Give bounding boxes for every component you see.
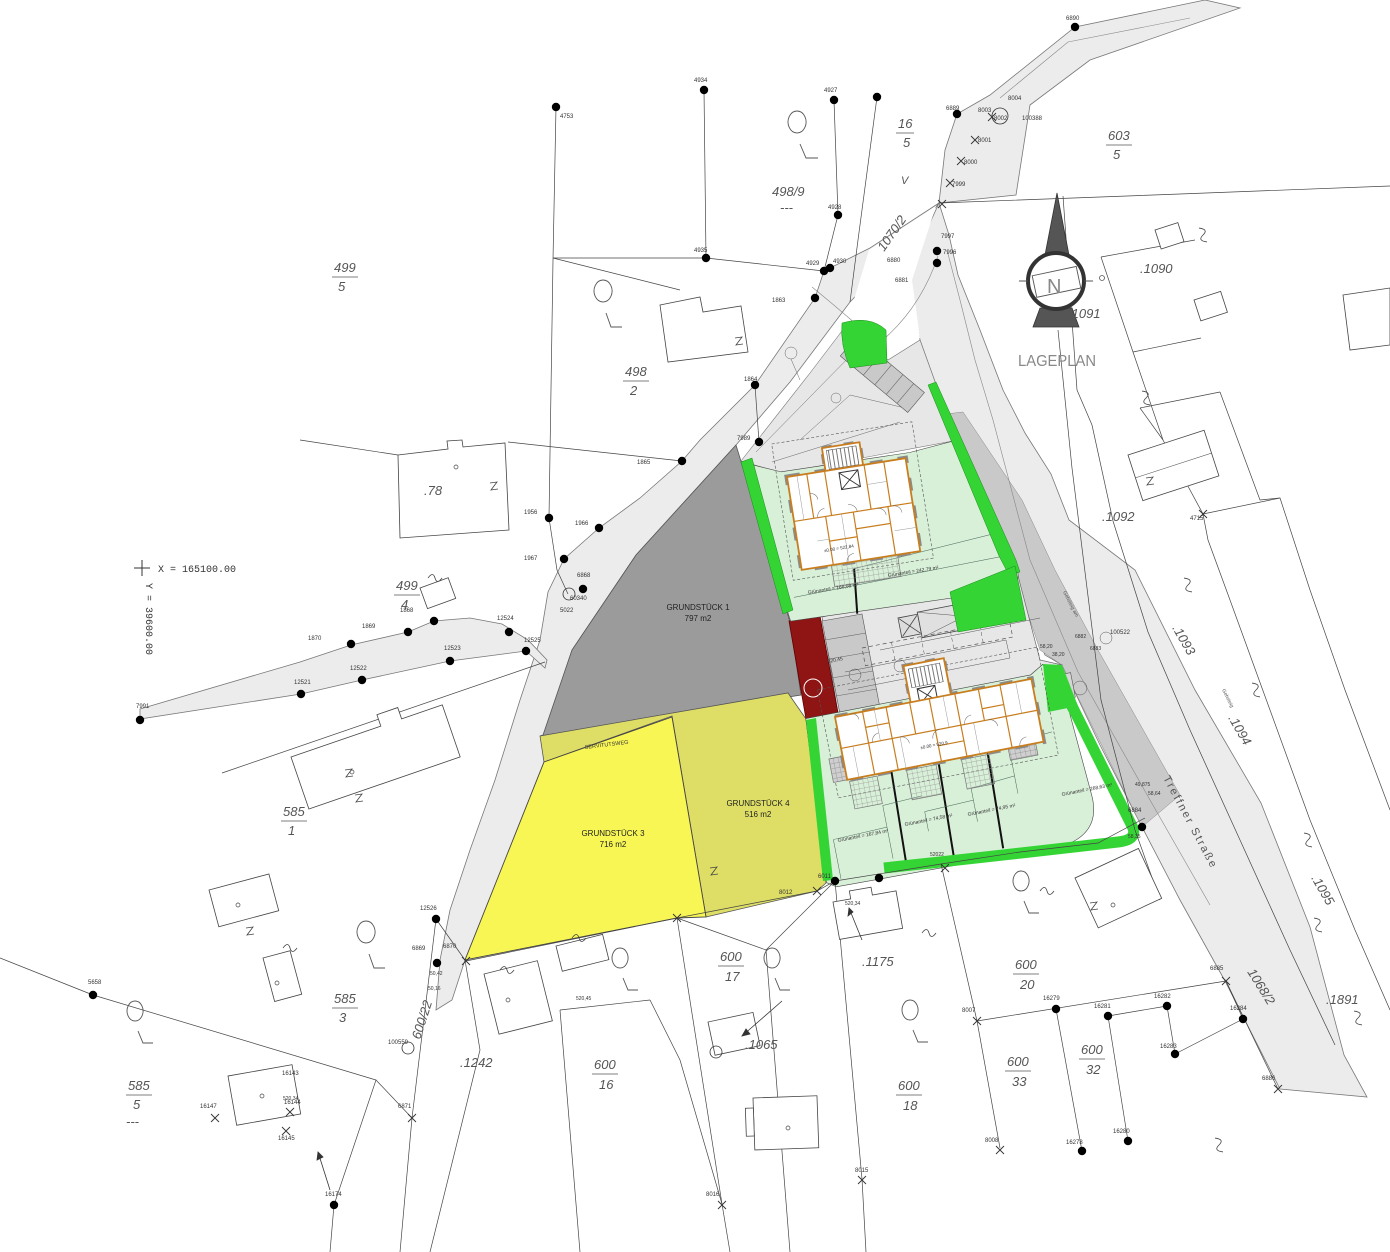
svg-text:12523: 12523 [444,646,461,652]
svg-text:58,20: 58,20 [1040,644,1053,650]
svg-text:---: --- [780,200,794,215]
svg-text:.1891: .1891 [1326,992,1359,1007]
svg-text:49,875: 49,875 [1135,782,1151,788]
svg-text:3: 3 [339,1010,347,1025]
svg-text:16282: 16282 [1154,994,1171,1000]
svg-text:499: 499 [396,578,418,593]
svg-text:4715: 4715 [1190,516,1204,522]
svg-text:12521: 12521 [294,680,311,686]
svg-text:8000: 8000 [964,160,978,166]
svg-text:16281: 16281 [1094,1004,1111,1010]
svg-text:16: 16 [599,1077,614,1092]
svg-text:N: N [1047,276,1061,298]
svg-text:600: 600 [594,1057,616,1072]
svg-text:1870: 1870 [308,636,322,642]
svg-text:6881: 6881 [895,278,909,284]
svg-text:GRUNDSTÜCK 4: GRUNDSTÜCK 4 [726,799,790,808]
svg-text:GRUNDSTÜCK 1: GRUNDSTÜCK 1 [666,603,730,612]
svg-text:6868: 6868 [577,573,591,579]
svg-text:600: 600 [1081,1042,1103,1057]
svg-text:60340: 60340 [570,596,587,602]
svg-text:1869: 1869 [362,624,376,630]
svg-text:16174: 16174 [325,1192,342,1198]
svg-text:5: 5 [1113,147,1121,162]
svg-text:GRUNDSTÜCK 3: GRUNDSTÜCK 3 [581,829,645,838]
svg-text:520,34: 520,34 [845,901,861,907]
svg-text:32: 32 [1086,1062,1101,1077]
svg-text:585: 585 [128,1078,150,1093]
svg-text:.1091: .1091 [1068,306,1101,321]
svg-text:7991: 7991 [136,704,150,710]
svg-text:.1092: .1092 [1102,509,1135,524]
svg-text:100388: 100388 [1022,116,1043,122]
svg-text:520,34: 520,34 [283,1096,299,1102]
svg-text:600: 600 [1015,957,1037,972]
svg-text:16145: 16145 [278,1136,295,1142]
svg-text:498/9: 498/9 [772,184,805,199]
svg-text:1863: 1863 [772,298,786,304]
svg-text:520,45: 520,45 [576,996,592,1002]
svg-text:6886: 6886 [1262,1076,1276,1082]
svg-text:X = 165100.00: X = 165100.00 [158,565,236,576]
svg-text:16284: 16284 [1230,1006,1247,1012]
svg-text:12526: 12526 [420,906,437,912]
svg-text:6011: 6011 [818,874,832,880]
svg-text:.1065: .1065 [745,1037,778,1052]
svg-text:16143: 16143 [282,1071,299,1077]
svg-text:12525: 12525 [524,638,541,644]
svg-text:.78: .78 [424,483,443,498]
svg-text:603: 603 [1108,128,1130,143]
svg-text:499: 499 [334,260,356,275]
svg-text:7996: 7996 [943,250,957,256]
svg-text:585: 585 [334,991,356,1006]
svg-text:20: 20 [1019,977,1035,992]
svg-text:1967: 1967 [524,556,538,562]
svg-text:1864: 1864 [744,377,758,383]
svg-text:8008: 8008 [985,1138,999,1144]
svg-text:8004: 8004 [1008,96,1022,102]
svg-text:8001: 8001 [978,138,992,144]
svg-text:7989: 7989 [737,436,751,442]
svg-text:5: 5 [903,135,911,150]
svg-text:16278: 16278 [1066,1140,1083,1146]
svg-text:4927: 4927 [824,88,838,94]
svg-text:6885: 6885 [1210,966,1224,972]
svg-text:50,16: 50,16 [428,986,441,992]
svg-text:1865: 1865 [637,460,651,466]
svg-text:17: 17 [725,969,740,984]
svg-text:4928: 4928 [828,205,842,211]
svg-text:600: 600 [898,1078,920,1093]
svg-text:6883: 6883 [1090,646,1101,652]
svg-text:516 m2: 516 m2 [745,810,772,819]
svg-text:585: 585 [283,804,305,819]
svg-text:58,64: 58,64 [1148,791,1161,797]
svg-text:8016: 8016 [706,1192,720,1198]
svg-text:Y = 39600.00: Y = 39600.00 [142,583,153,655]
svg-text:5022: 5022 [560,608,574,614]
svg-text:1956: 1956 [524,510,538,516]
svg-text:100559: 100559 [388,1040,409,1046]
svg-text:797 m2: 797 m2 [685,614,712,623]
svg-text:16283: 16283 [1160,1044,1177,1050]
svg-text:12524: 12524 [497,616,514,622]
svg-text:8015: 8015 [855,1168,869,1174]
svg-text:8012: 8012 [779,890,793,896]
svg-text:498: 498 [625,364,647,379]
svg-text:5: 5 [133,1097,141,1112]
svg-text:6882: 6882 [1075,634,1086,640]
svg-text:2: 2 [629,383,638,398]
svg-text:4753: 4753 [560,114,574,120]
svg-text:LAGEPLAN: LAGEPLAN [1018,353,1096,370]
svg-text:58,35: 58,35 [1128,834,1141,840]
svg-text:4935: 4935 [694,248,708,254]
svg-text:16280: 16280 [1113,1129,1130,1135]
svg-text:4934: 4934 [694,78,708,84]
svg-text:4929: 4929 [806,261,820,267]
svg-text:5658: 5658 [88,980,102,986]
svg-text:18: 18 [903,1098,918,1113]
svg-text:716 m2: 716 m2 [600,840,627,849]
svg-text:1966: 1966 [575,521,589,527]
svg-text:6869: 6869 [412,946,426,952]
svg-text:7999: 7999 [952,182,966,188]
svg-text:16279: 16279 [1043,996,1060,1002]
svg-text:50,42: 50,42 [430,971,443,977]
svg-text:4: 4 [401,597,408,612]
svg-text:16147: 16147 [200,1104,217,1110]
svg-text:16: 16 [898,116,913,131]
svg-text:8002: 8002 [994,116,1008,122]
svg-text:12522: 12522 [350,666,367,672]
svg-text:600: 600 [720,949,742,964]
svg-text:6890: 6890 [1066,16,1080,22]
svg-text:---: --- [126,1114,140,1129]
svg-text:.1242: .1242 [460,1055,493,1070]
svg-text:6889: 6889 [946,106,960,112]
svg-text:.1175: .1175 [862,954,894,969]
svg-text:6884: 6884 [1128,808,1142,814]
svg-text:8003: 8003 [978,108,992,114]
svg-text:8007: 8007 [962,1008,976,1014]
svg-text:6870: 6870 [443,944,457,950]
svg-text:.1090: .1090 [1140,261,1173,276]
svg-text:4930: 4930 [833,259,847,265]
svg-text:600: 600 [1007,1054,1029,1069]
svg-text:1: 1 [288,823,295,838]
svg-text:6880: 6880 [887,258,901,264]
svg-text:100522: 100522 [1110,630,1131,636]
svg-text:33: 33 [1012,1074,1027,1089]
svg-text:38,20: 38,20 [1052,652,1065,658]
svg-text:6871: 6871 [398,1104,412,1110]
svg-text:52022: 52022 [930,852,944,858]
svg-text:5: 5 [338,279,346,294]
svg-text:7997: 7997 [941,234,955,240]
